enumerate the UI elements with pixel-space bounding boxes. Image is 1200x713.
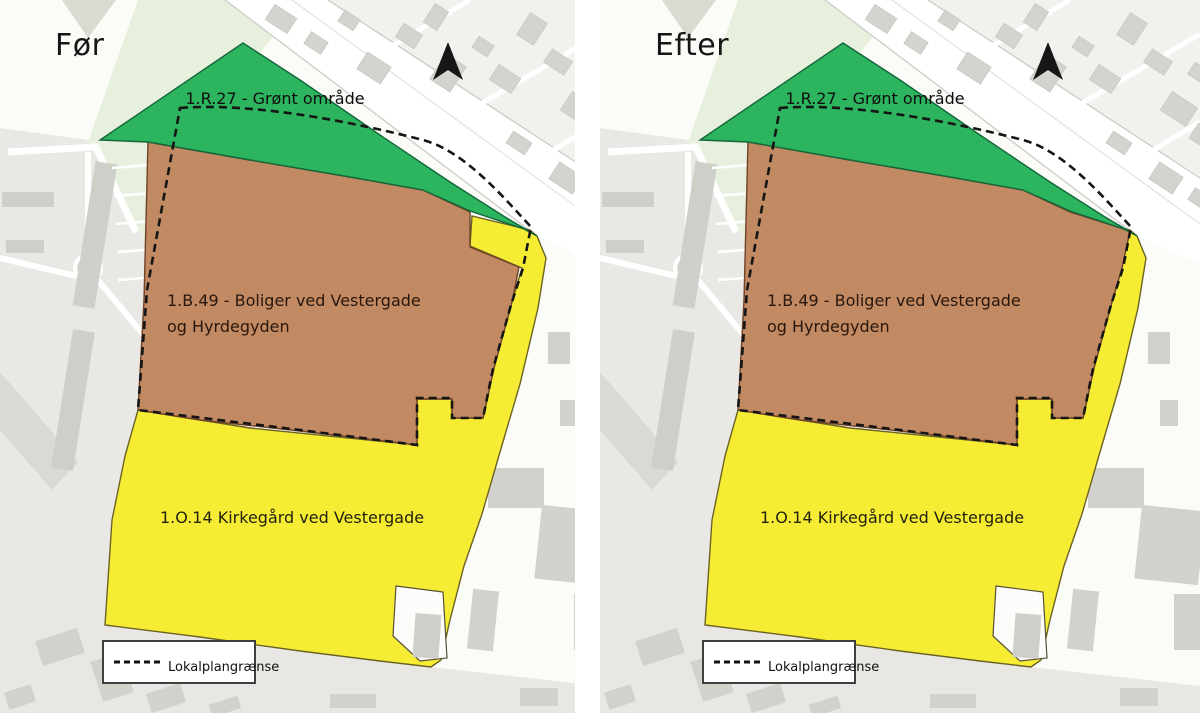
building bbox=[1148, 332, 1170, 364]
zone-label-cemetery: 1.O.14 Kirkegård ved Vestergade bbox=[760, 508, 1024, 527]
building bbox=[330, 694, 376, 708]
zone-label-housing-line2: og Hyrdegyden bbox=[767, 317, 890, 336]
building bbox=[1174, 594, 1200, 650]
panel-title-after: Efter bbox=[655, 28, 729, 63]
panel-before: Før 1.R.27 - Grønt område1.B.49 - Bolige… bbox=[0, 0, 575, 713]
zone-label-housing-line1: 1.B.49 - Boliger ved Vestergade bbox=[167, 291, 421, 310]
building bbox=[1160, 400, 1178, 426]
panel-title-before: Før bbox=[55, 28, 104, 63]
zone-label-housing-line1: 1.B.49 - Boliger ved Vestergade bbox=[767, 291, 1021, 310]
building bbox=[930, 694, 976, 708]
building bbox=[520, 688, 558, 706]
building bbox=[560, 400, 575, 426]
zone-label-cemetery: 1.O.14 Kirkegård ved Vestergade bbox=[160, 508, 424, 527]
legend-label: Lokalplangrænse bbox=[768, 660, 879, 675]
building bbox=[412, 613, 441, 659]
apartment-building bbox=[6, 240, 44, 253]
zone-label-green: 1.R.27 - Grønt område bbox=[785, 89, 964, 108]
building bbox=[574, 594, 575, 650]
apartment-building bbox=[602, 192, 654, 207]
building bbox=[488, 468, 544, 508]
map-canvas-after: 1.R.27 - Grønt område1.B.49 - Boliger ve… bbox=[600, 0, 1200, 713]
apartment-building bbox=[606, 240, 644, 253]
panel-after: Efter 1.R.27 - Grønt område1.B.49 - Boli… bbox=[600, 0, 1200, 713]
planning-map-figure: Før 1.R.27 - Grønt område1.B.49 - Bolige… bbox=[0, 0, 1200, 713]
building bbox=[1088, 468, 1144, 508]
building bbox=[1012, 613, 1041, 659]
map-canvas-before: 1.R.27 - Grønt område1.B.49 - Boliger ve… bbox=[0, 0, 575, 713]
zone-label-housing-line2: og Hyrdegyden bbox=[167, 317, 290, 336]
building bbox=[1134, 505, 1200, 585]
legend-label: Lokalplangrænse bbox=[168, 660, 279, 675]
building bbox=[1120, 688, 1158, 706]
zone-label-green: 1.R.27 - Grønt område bbox=[185, 89, 364, 108]
building bbox=[548, 332, 570, 364]
apartment-building bbox=[2, 192, 54, 207]
